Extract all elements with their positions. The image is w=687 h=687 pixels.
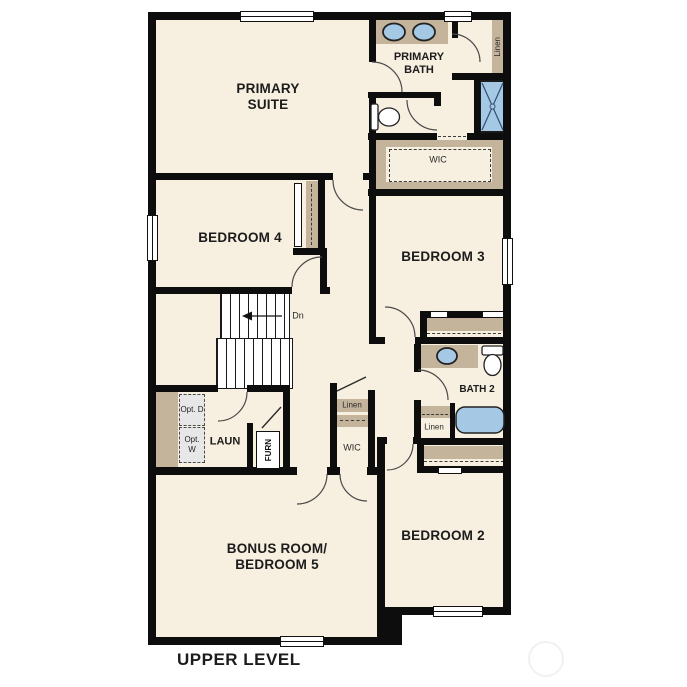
bedroom3-closet-shelf xyxy=(424,318,504,331)
stairs-dn-label: Dn xyxy=(292,311,304,322)
wall xyxy=(474,80,480,133)
wall xyxy=(452,20,458,38)
wall xyxy=(369,92,376,196)
room-label-primary-bath: PRIMARY BATH xyxy=(383,51,455,77)
window xyxy=(433,606,483,617)
wall xyxy=(330,383,337,475)
optional-washer-label: Opt. W xyxy=(180,435,204,454)
room-label-bedroom4: BEDROOM 4 xyxy=(175,230,305,246)
optional-dryer: Opt. D xyxy=(179,394,205,426)
bath2-linen-rod xyxy=(422,414,448,415)
wall xyxy=(415,337,511,344)
bedroom3-closet-rod xyxy=(427,333,501,334)
hall-wic-rod xyxy=(340,420,365,421)
wall xyxy=(148,173,333,180)
bath2-vanity xyxy=(420,345,478,368)
window xyxy=(240,11,314,22)
window xyxy=(147,215,158,261)
window xyxy=(280,636,324,647)
wall xyxy=(452,73,511,80)
primary-shower xyxy=(479,80,505,133)
wic-cased-opening-dash xyxy=(438,136,466,137)
room-label-bedroom3: BEDROOM 3 xyxy=(378,249,508,265)
optional-washer: Opt. W xyxy=(179,427,205,463)
closet-slider xyxy=(438,467,462,474)
wall xyxy=(434,92,441,106)
wall xyxy=(413,437,421,444)
label-hall-linen: Linen xyxy=(342,400,362,409)
wall xyxy=(368,189,511,196)
wall xyxy=(367,467,385,475)
wall xyxy=(414,344,421,372)
wall xyxy=(377,437,387,444)
wall xyxy=(369,20,376,62)
primary-bath-vanity xyxy=(375,20,448,44)
closet-slider xyxy=(430,311,448,318)
room-label-bedroom2: BEDROOM 2 xyxy=(378,528,508,544)
wall xyxy=(363,173,371,180)
room-label-primary-suite: PRIMARY SUITE xyxy=(222,81,314,113)
label-primary-linen-wrap: Linen xyxy=(491,24,504,70)
wall xyxy=(247,423,253,470)
optional-dryer-label: Opt. D xyxy=(180,405,203,415)
room-label-primary-wic: WIC xyxy=(429,155,447,166)
wall xyxy=(283,385,290,475)
wall xyxy=(368,92,441,98)
wall xyxy=(148,12,156,645)
watermark-circle xyxy=(528,641,564,677)
label-bath2-linen: Linen xyxy=(424,422,444,431)
bedroom4-closet-shelf xyxy=(306,181,318,248)
wall xyxy=(417,466,511,473)
wall xyxy=(369,337,385,344)
wall xyxy=(322,287,330,294)
wall xyxy=(368,133,437,140)
wall xyxy=(420,438,511,445)
wall xyxy=(148,637,402,645)
stairs-upper-flight xyxy=(220,293,290,339)
wall xyxy=(368,390,375,467)
room-label-primary-linen: Linen xyxy=(493,37,502,57)
stairs-lower-flight xyxy=(216,338,293,389)
wall xyxy=(369,196,376,337)
window xyxy=(444,11,472,22)
bedroom2-closet-shelf xyxy=(420,446,508,459)
wall xyxy=(318,173,325,255)
floor-plan: Opt. D Opt. W xyxy=(0,0,687,687)
hall-wic-shelf xyxy=(337,415,368,427)
wall xyxy=(156,385,218,392)
laundry-counter xyxy=(156,390,178,467)
furnace-label: FURN xyxy=(264,439,273,461)
wall xyxy=(148,287,292,294)
bedroom4-closet-rod xyxy=(311,184,312,245)
wall xyxy=(247,385,283,392)
room-label-bath2: BATH 2 xyxy=(459,384,494,396)
room-label-laundry: LAUN xyxy=(210,436,241,449)
plan-title: UPPER LEVEL xyxy=(177,650,301,670)
wall xyxy=(420,311,427,344)
wall xyxy=(467,133,511,140)
bedroom2-closet-rod xyxy=(424,461,504,462)
closet-slider xyxy=(482,311,504,318)
room-label-bonus-room: BONUS ROOM/ BEDROOM 5 xyxy=(214,541,340,573)
furnace-unit: FURN xyxy=(256,431,280,469)
bath2-linen-shelf xyxy=(420,406,450,418)
wall xyxy=(450,403,455,438)
label-hall-wic: WIC xyxy=(343,443,361,454)
